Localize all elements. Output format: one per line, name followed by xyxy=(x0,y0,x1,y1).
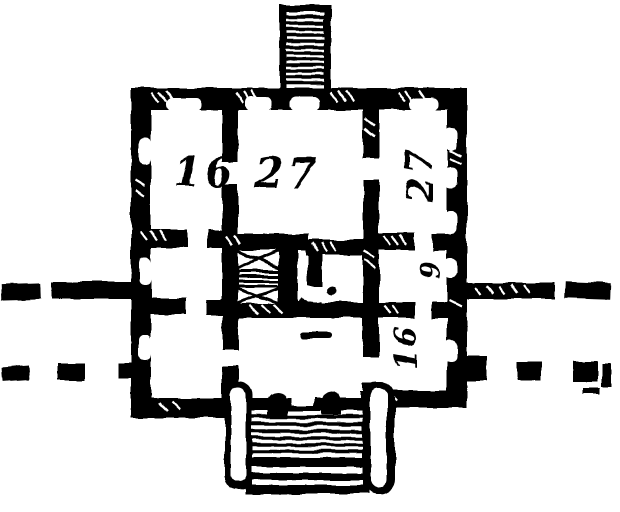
floor-plan-page: 16 27 27 9 16 xyxy=(0,0,620,512)
stair-closet xyxy=(300,240,370,339)
boundary-wall-right xyxy=(465,281,611,394)
door-swing-mark xyxy=(300,300,322,304)
floor-plan-drawing: 16 27 27 9 16 xyxy=(0,0,620,512)
room-label-right-top: 27 xyxy=(399,146,441,203)
boundary-wall-left xyxy=(2,282,139,382)
porch-column-left xyxy=(267,392,287,416)
left-wall xyxy=(131,88,151,418)
room-label-left: 16 xyxy=(173,149,237,196)
room-label-right-bottom: 16 xyxy=(389,324,424,370)
entrance-porch xyxy=(225,382,395,494)
main-staircase xyxy=(222,234,308,306)
room-label-right-middle: 9 xyxy=(416,261,446,279)
hall-mark xyxy=(300,332,332,339)
porch-steps xyxy=(246,406,368,494)
window-notches xyxy=(139,96,457,362)
chimney-icon xyxy=(279,5,331,95)
porch-column-right xyxy=(321,391,341,415)
room-label-center: 27 xyxy=(254,149,319,198)
